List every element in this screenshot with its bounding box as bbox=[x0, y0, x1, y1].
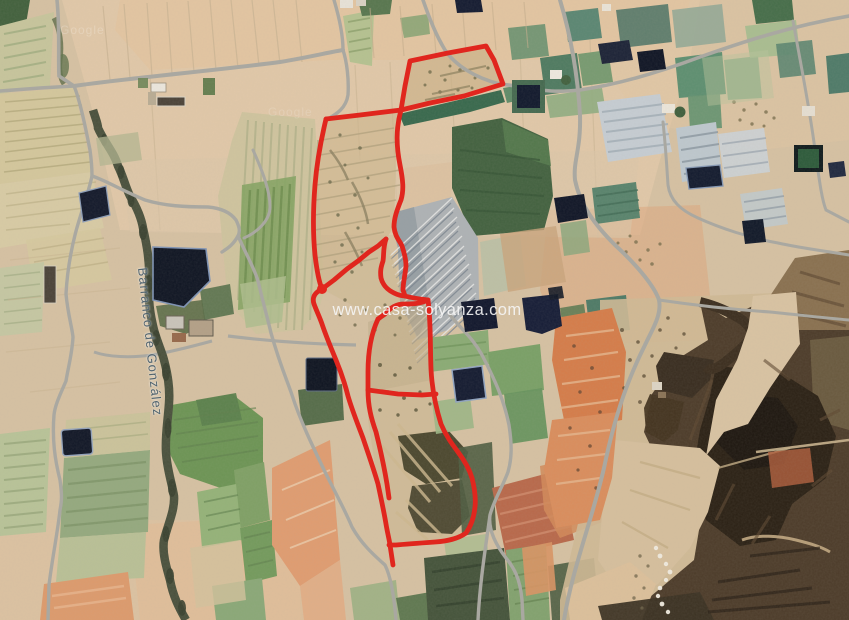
svg-text:www.casa-solyanza.com: www.casa-solyanza.com bbox=[331, 301, 521, 319]
svg-text:Google: Google bbox=[60, 23, 105, 37]
svg-text:Google: Google bbox=[268, 105, 313, 119]
